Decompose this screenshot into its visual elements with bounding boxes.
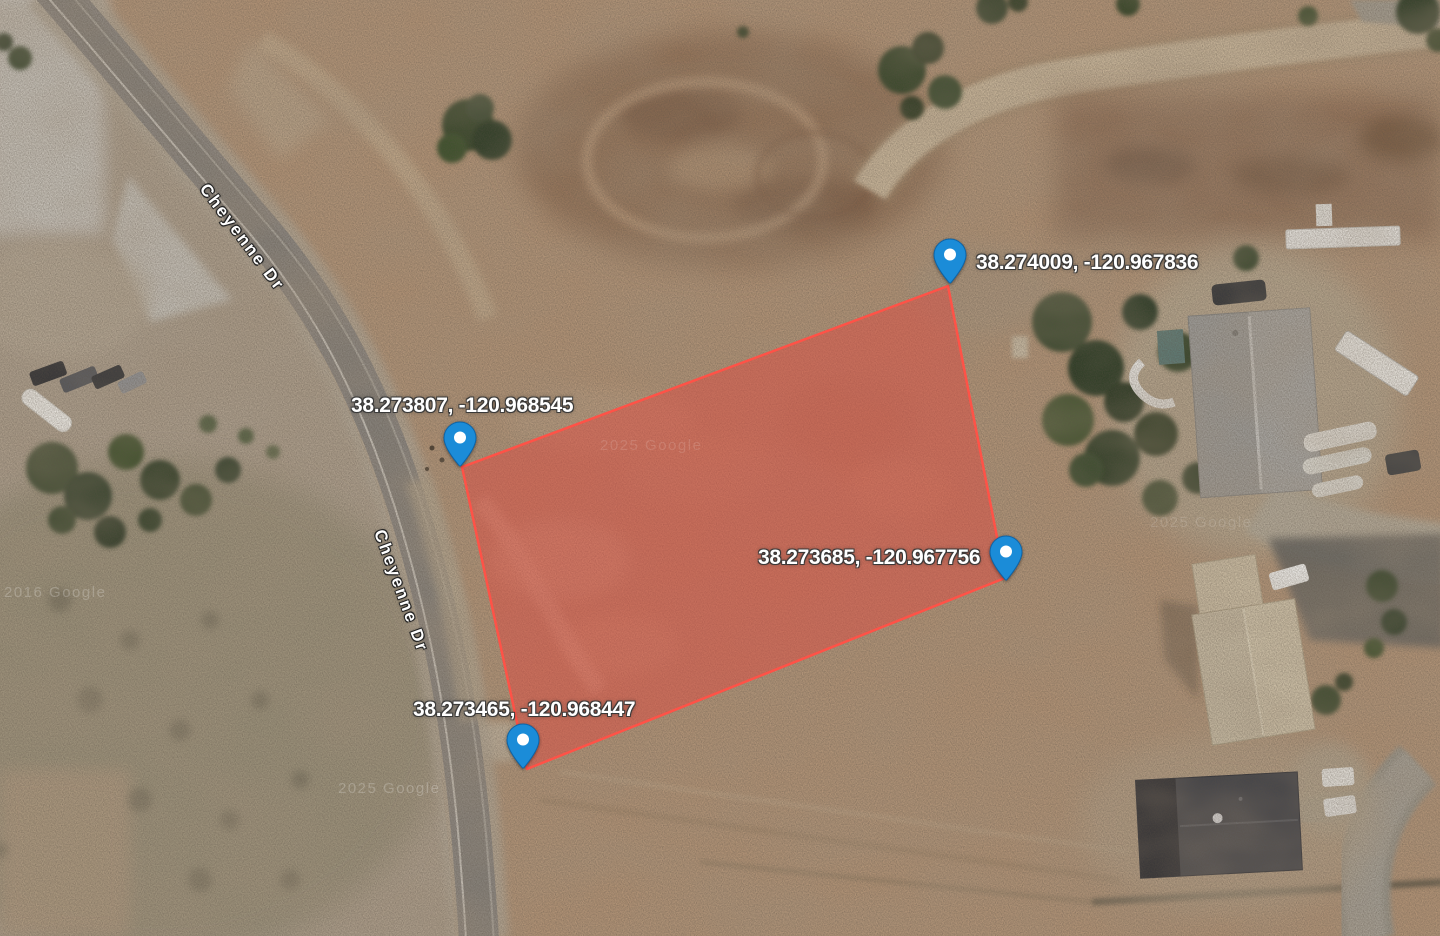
map-pin-northeast[interactable] (933, 238, 967, 284)
map-pin-icon (506, 723, 540, 769)
coordinate-label-east: 38.273685, -120.967756 (758, 546, 980, 570)
coordinate-label-northeast: 38.274009, -120.967836 (976, 251, 1198, 275)
map-pin-icon (443, 421, 477, 467)
satellite-map[interactable]: 2016 Google 2025 Google 2025 Google 2025… (0, 0, 1440, 936)
map-pin-icon (989, 535, 1023, 581)
map-attribution-watermark: 2025 Google (600, 437, 702, 454)
satellite-imagery (0, 0, 1440, 936)
map-attribution-watermark: 2025 Google (1150, 514, 1252, 531)
map-pin-east[interactable] (989, 535, 1023, 581)
map-attribution-watermark: 2016 Google (4, 584, 106, 601)
coordinate-label-southwest: 38.273465, -120.968447 (413, 698, 635, 722)
map-pin-southwest[interactable] (506, 723, 540, 769)
map-attribution-watermark: 2025 Google (338, 780, 440, 797)
map-pin-icon (933, 238, 967, 284)
coordinate-label-west: 38.273807, -120.968545 (351, 394, 573, 418)
map-pin-west[interactable] (443, 421, 477, 467)
